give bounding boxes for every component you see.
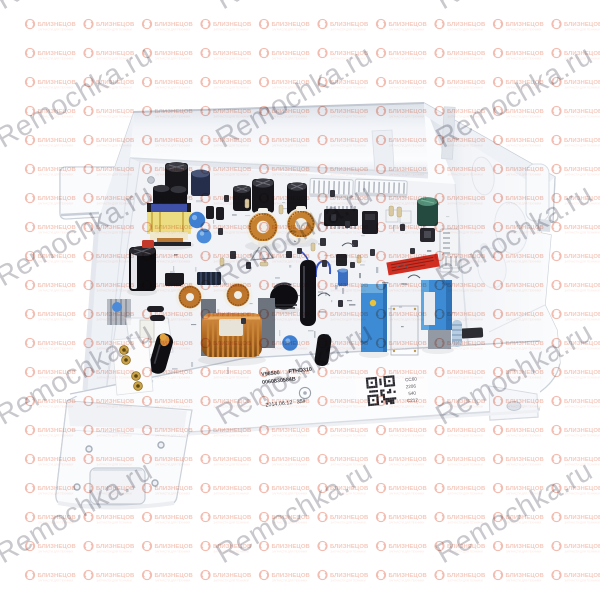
svg-text:540: 540 [408,390,417,396]
svg-text:2206: 2206 [405,383,416,389]
